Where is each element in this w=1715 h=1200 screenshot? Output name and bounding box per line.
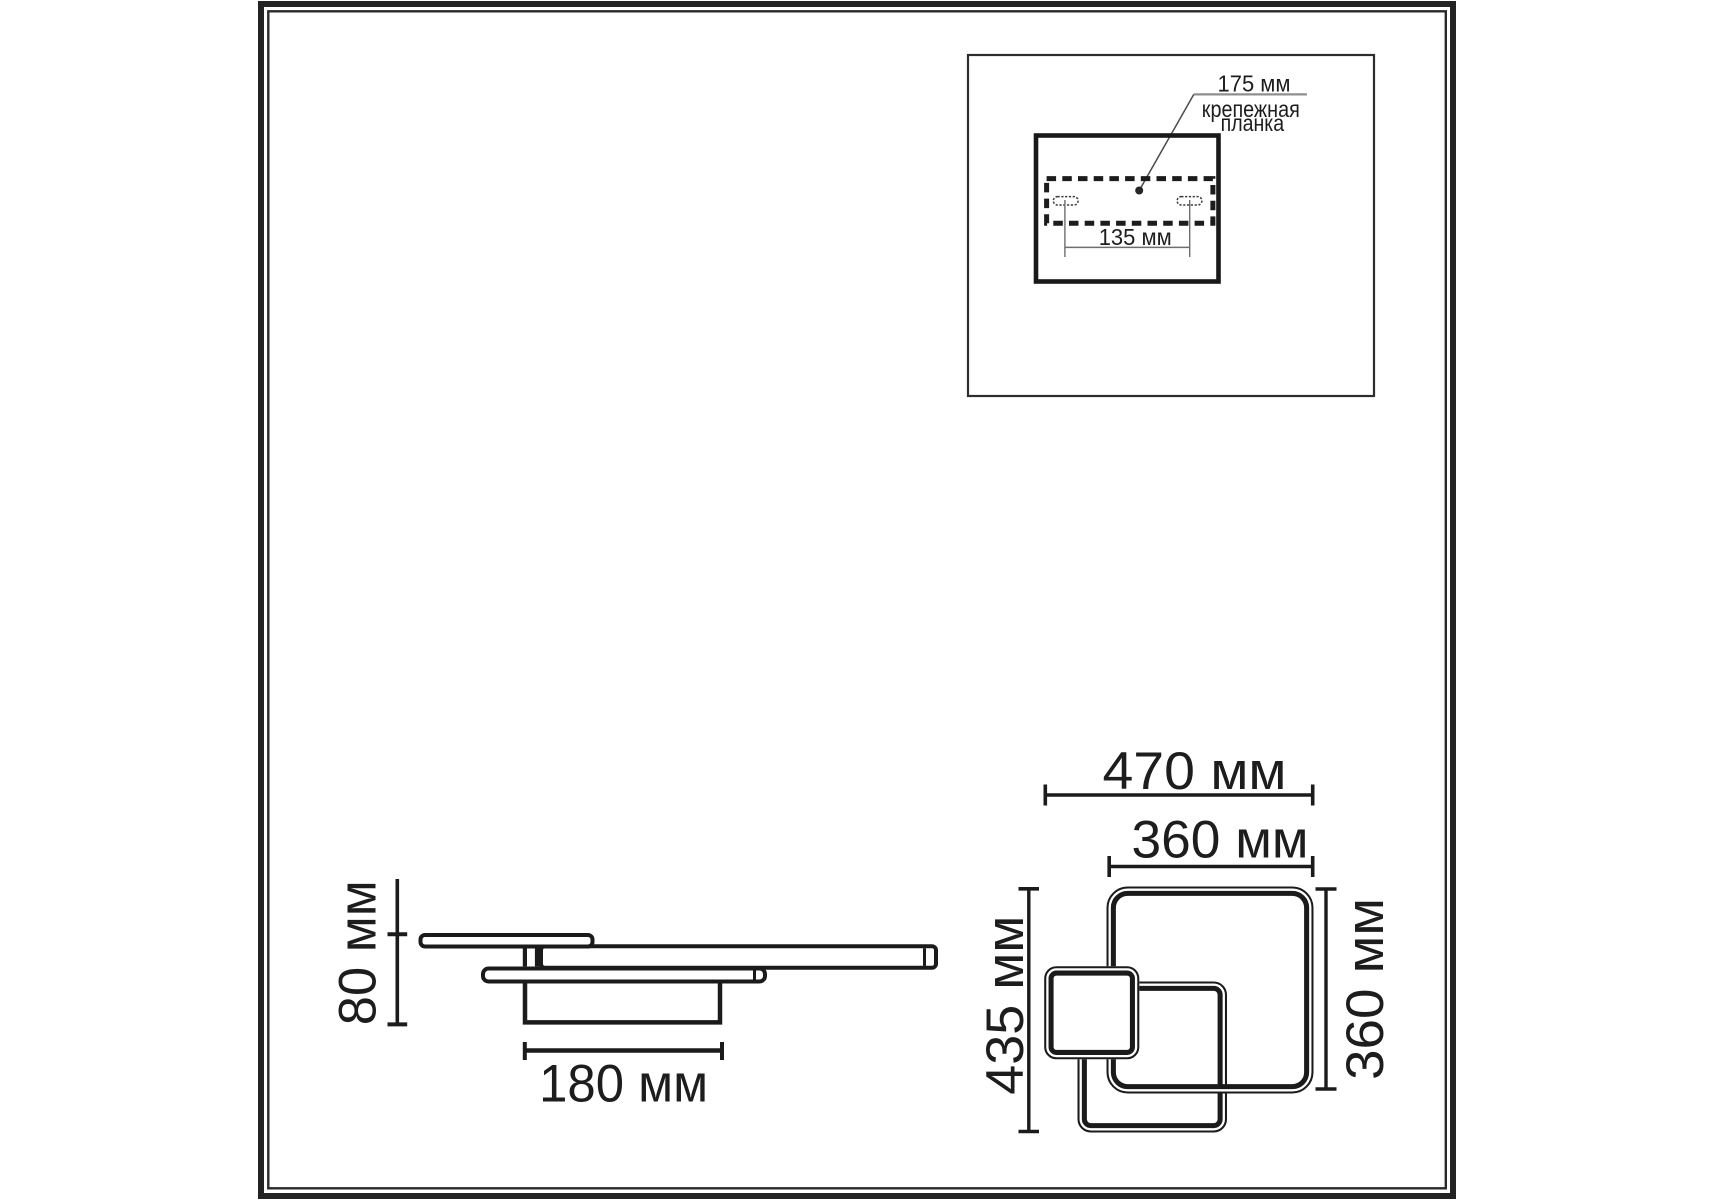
svg-text:470 мм: 470 мм — [1103, 742, 1287, 801]
svg-text:360 мм: 360 мм — [1336, 898, 1395, 1080]
svg-text:435 мм: 435 мм — [976, 916, 1035, 1095]
svg-text:180 мм: 180 мм — [539, 1055, 708, 1114]
svg-text:360 мм: 360 мм — [1132, 811, 1309, 870]
svg-text:175 мм: 175 мм — [1218, 71, 1291, 97]
svg-text:планка: планка — [1221, 110, 1285, 136]
svg-text:80 мм: 80 мм — [329, 880, 388, 1025]
svg-text:135 мм: 135 мм — [1099, 224, 1172, 250]
